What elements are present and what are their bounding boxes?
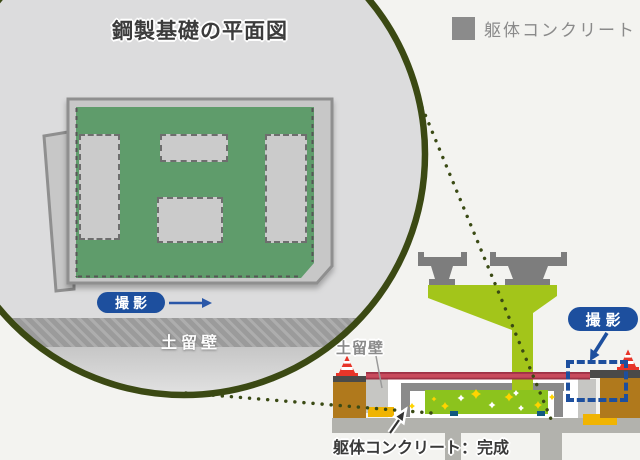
girder-bearing: [490, 252, 567, 285]
plan-concrete-opening: [157, 197, 223, 243]
base-slab: [332, 418, 640, 433]
wall-base-block: [368, 407, 394, 417]
legend-label: 躯体コンクリート: [484, 16, 636, 41]
pile: [540, 432, 562, 460]
caption-arrow: [390, 409, 406, 433]
footing-marker: [537, 411, 545, 416]
infographic-stage: 鋼製基礎の平面図 躯体コンクリート 撮影 土留壁 撮影 土留壁 躯体コンクリート…: [0, 0, 640, 460]
photo-target-region: [566, 360, 628, 402]
plan-concrete-opening: [160, 134, 228, 162]
steel-foundation-leg: [554, 383, 563, 417]
shoot-badge-plan: 撮影: [97, 292, 165, 313]
footing-concrete: [425, 390, 548, 414]
section-caption: 躯体コンクリート：完成: [333, 434, 509, 458]
retaining-wall-label-section: 土留壁: [336, 337, 384, 358]
legend: 躯体コンクリート: [452, 16, 636, 41]
shoot-badge-section: 撮影: [568, 307, 638, 331]
pier-column: [428, 285, 557, 392]
sparkles-decoration: [409, 389, 555, 411]
plan-title: 鋼製基礎の平面図: [58, 15, 342, 45]
concrete-swatch-icon: [452, 17, 475, 40]
wall-base-block: [583, 414, 617, 425]
shoot-target-arrow: [590, 333, 607, 361]
plan-concrete-opening: [79, 134, 120, 240]
retaining-wall-label-plan: 土留壁: [143, 329, 239, 353]
footing-marker: [450, 411, 458, 416]
girder-bearing: [418, 252, 467, 285]
callout-dotted-line-upper: [422, 107, 553, 424]
plan-concrete-opening: [265, 134, 307, 243]
